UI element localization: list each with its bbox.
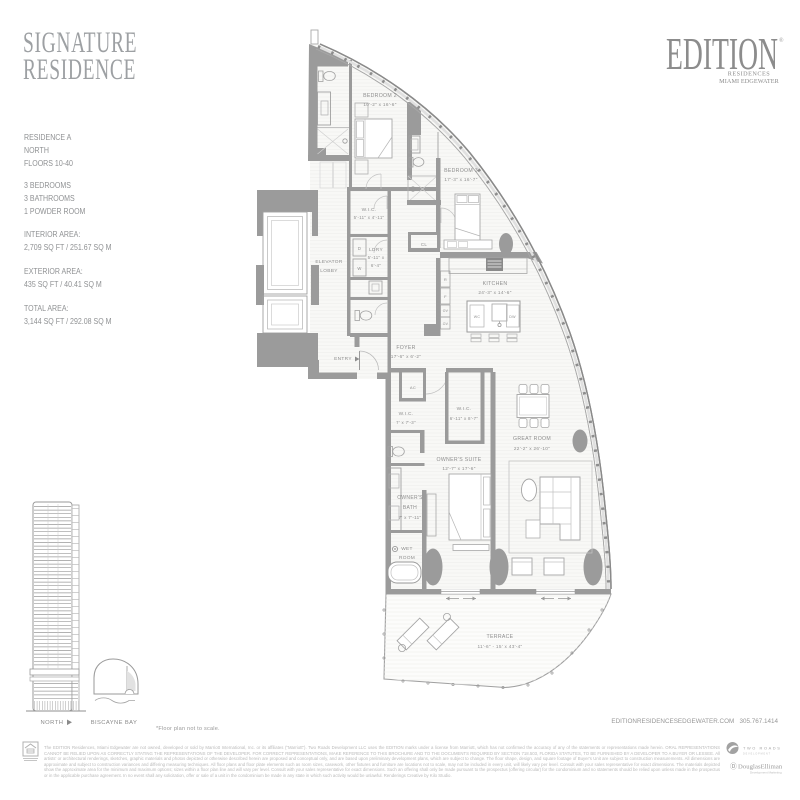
- svg-text:BISCAYNE BAY: BISCAYNE BAY: [91, 720, 137, 726]
- svg-text:Development Marketing: Development Marketing: [750, 771, 782, 775]
- svg-text:6'-4": 6'-4": [371, 263, 381, 268]
- svg-text:ENTRY: ENTRY: [334, 356, 352, 362]
- svg-text:LOBBY: LOBBY: [320, 268, 338, 274]
- svg-text:DouglasElliman: DouglasElliman: [738, 764, 782, 771]
- svg-text:W.I.C.: W.I.C.: [362, 207, 377, 213]
- svg-text:17'-6" x 6'-2": 17'-6" x 6'-2": [391, 354, 421, 359]
- svg-text:OV: OV: [443, 309, 449, 313]
- svg-text:OV: OV: [443, 322, 449, 326]
- svg-text:LDRY: LDRY: [369, 247, 383, 253]
- svg-text:GREAT ROOM: GREAT ROOM: [513, 436, 551, 442]
- svg-text:ELEVATOR: ELEVATOR: [315, 259, 342, 265]
- svg-text:CL: CL: [421, 242, 427, 247]
- svg-text:FOYER: FOYER: [396, 345, 415, 351]
- svg-text:11'-6" - 15' x 43'-4": 11'-6" - 15' x 43'-4": [477, 644, 522, 649]
- svg-text:BEDROOM 3: BEDROOM 3: [444, 168, 478, 174]
- svg-text:12'-7" x 17'-6": 12'-7" x 17'-6": [442, 466, 475, 471]
- svg-text:5'-11" x 4'-11": 5'-11" x 4'-11": [354, 215, 385, 220]
- svg-text:W.I.C.: W.I.C.: [457, 406, 472, 412]
- svg-text:17'-3" x 16'-7": 17'-3" x 16'-7": [444, 177, 477, 182]
- svg-text:OWNER'S: OWNER'S: [397, 495, 423, 501]
- svg-text:D: D: [358, 246, 361, 251]
- svg-text:24'-3" x 14'-6": 24'-3" x 14'-6": [478, 290, 511, 295]
- svg-text:10'-2" x 16'-6": 10'-2" x 16'-6": [363, 102, 396, 107]
- svg-text:5'-11" x: 5'-11" x: [368, 255, 385, 260]
- svg-text:WC: WC: [474, 315, 481, 319]
- svg-text:WET: WET: [401, 546, 413, 552]
- svg-text:W.I.C.: W.I.C.: [399, 411, 414, 417]
- svg-text:BEDROOM 2: BEDROOM 2: [363, 93, 397, 99]
- svg-text:KITCHEN: KITCHEN: [483, 281, 508, 287]
- svg-text:*Floor plan not to scale.: *Floor plan not to scale.: [156, 726, 220, 732]
- svg-text:6'-11" x 8'-7": 6'-11" x 8'-7": [450, 416, 479, 421]
- svg-text:AC: AC: [410, 385, 416, 390]
- svg-text:NORTH: NORTH: [40, 720, 63, 726]
- svg-text:7' x 7'-11": 7' x 7'-11": [399, 515, 422, 520]
- svg-text:Ⓓ: Ⓓ: [730, 763, 737, 771]
- svg-text:TERRACE: TERRACE: [487, 634, 514, 640]
- svg-text:OWNER'S SUITE: OWNER'S SUITE: [437, 457, 482, 463]
- svg-text:DEVELOPMENT: DEVELOPMENT: [743, 753, 771, 756]
- svg-text:7' x 7'-3": 7' x 7'-3": [396, 420, 416, 425]
- svg-text:F: F: [444, 294, 447, 299]
- svg-text:BATH: BATH: [403, 505, 417, 511]
- svg-text:R: R: [444, 277, 447, 282]
- svg-text:22'-2" x 26'-10": 22'-2" x 26'-10": [514, 446, 550, 451]
- svg-text:ROOM: ROOM: [399, 555, 415, 561]
- svg-text:W: W: [357, 266, 361, 271]
- svg-text:TWO ROADS: TWO ROADS: [743, 746, 781, 751]
- svg-text:DW: DW: [509, 315, 516, 319]
